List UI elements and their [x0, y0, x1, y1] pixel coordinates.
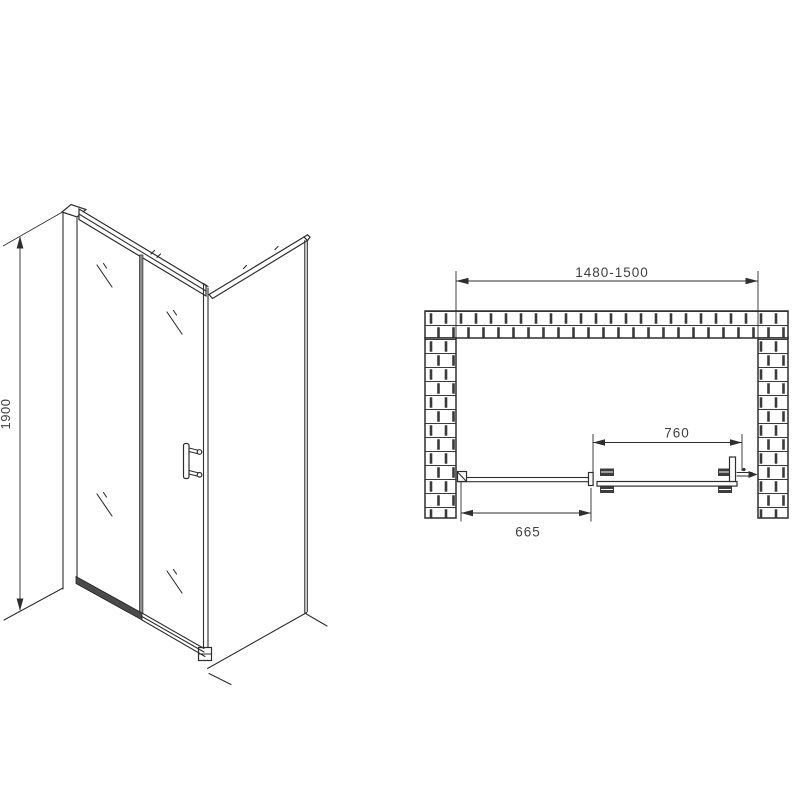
side-panel-top-rail: [209, 237, 308, 299]
glass-mark: [97, 264, 112, 288]
arrowhead-left: [456, 278, 469, 284]
side-panel-bottom-edge: [208, 613, 307, 669]
fixed-panel-plan: [458, 472, 594, 486]
left-wall-profile: [62, 205, 86, 590]
niche-width-label: 1480-1500: [575, 265, 649, 280]
wall-left-column: [425, 338, 456, 518]
technical-drawing-svg: 1900: [0, 0, 798, 800]
floor-lines: [4, 588, 327, 685]
handle-boss-top: [197, 450, 202, 455]
sliding-glass-panel: [140, 255, 183, 613]
side-panel: [208, 235, 311, 669]
fixed-panel-glass: [458, 478, 592, 482]
height-dimension-label: 1900: [0, 399, 13, 430]
bracket-arrow: [749, 471, 758, 478]
arrowhead-left: [461, 510, 473, 516]
arrowhead-left: [593, 439, 605, 445]
fixed-glass-panel: [97, 264, 112, 517]
floor-line-left: [4, 588, 63, 620]
drawing-canvas: 1900: [0, 0, 798, 800]
handle-boss-bottom: [197, 473, 202, 478]
sliding-panel-plan: [597, 457, 758, 493]
floor-line-front: [209, 674, 231, 685]
bracket-dot: [742, 468, 745, 471]
extension-lines: [461, 482, 591, 522]
bottom-track-dark-band: [76, 577, 142, 621]
bottom-track-top-line: [142, 613, 204, 649]
arrowhead-right: [746, 278, 759, 284]
wall-profile-right: [730, 457, 736, 482]
extension-line-top: [3, 210, 66, 246]
plan-view: 1480-1500: [425, 265, 788, 540]
right-post: [199, 284, 212, 661]
sliding-dimension: 760: [593, 426, 742, 477]
wall-back-band: [425, 311, 788, 338]
arrowhead-right: [730, 439, 742, 445]
height-dimension: 1900: [0, 210, 66, 611]
bottom-track-bottom-line: [142, 620, 205, 657]
wall-right-column: [758, 338, 788, 518]
handle-bar: [184, 444, 190, 479]
arrowhead-right: [579, 510, 591, 516]
sliding-panel-label: 760: [664, 426, 690, 441]
floor-line-right: [306, 614, 328, 627]
glass-mark: [167, 311, 182, 335]
sliding-panel-stile: [140, 255, 143, 613]
glass-mark: [97, 493, 112, 517]
isometric-view: 1900: [0, 205, 327, 685]
roller-clamp: [600, 469, 614, 494]
arrowhead-down: [17, 599, 24, 612]
wall-bracket-right: [737, 468, 758, 478]
sliding-panel-glass: [597, 482, 737, 487]
bottom-track-mid-line: [142, 617, 204, 653]
fixed-panel-label: 665: [515, 525, 541, 540]
fixed-panel-end-cap: [589, 473, 594, 486]
fixed-dimension: 665: [461, 482, 591, 540]
glass-mark: [167, 570, 182, 594]
door-handle: [184, 444, 202, 479]
